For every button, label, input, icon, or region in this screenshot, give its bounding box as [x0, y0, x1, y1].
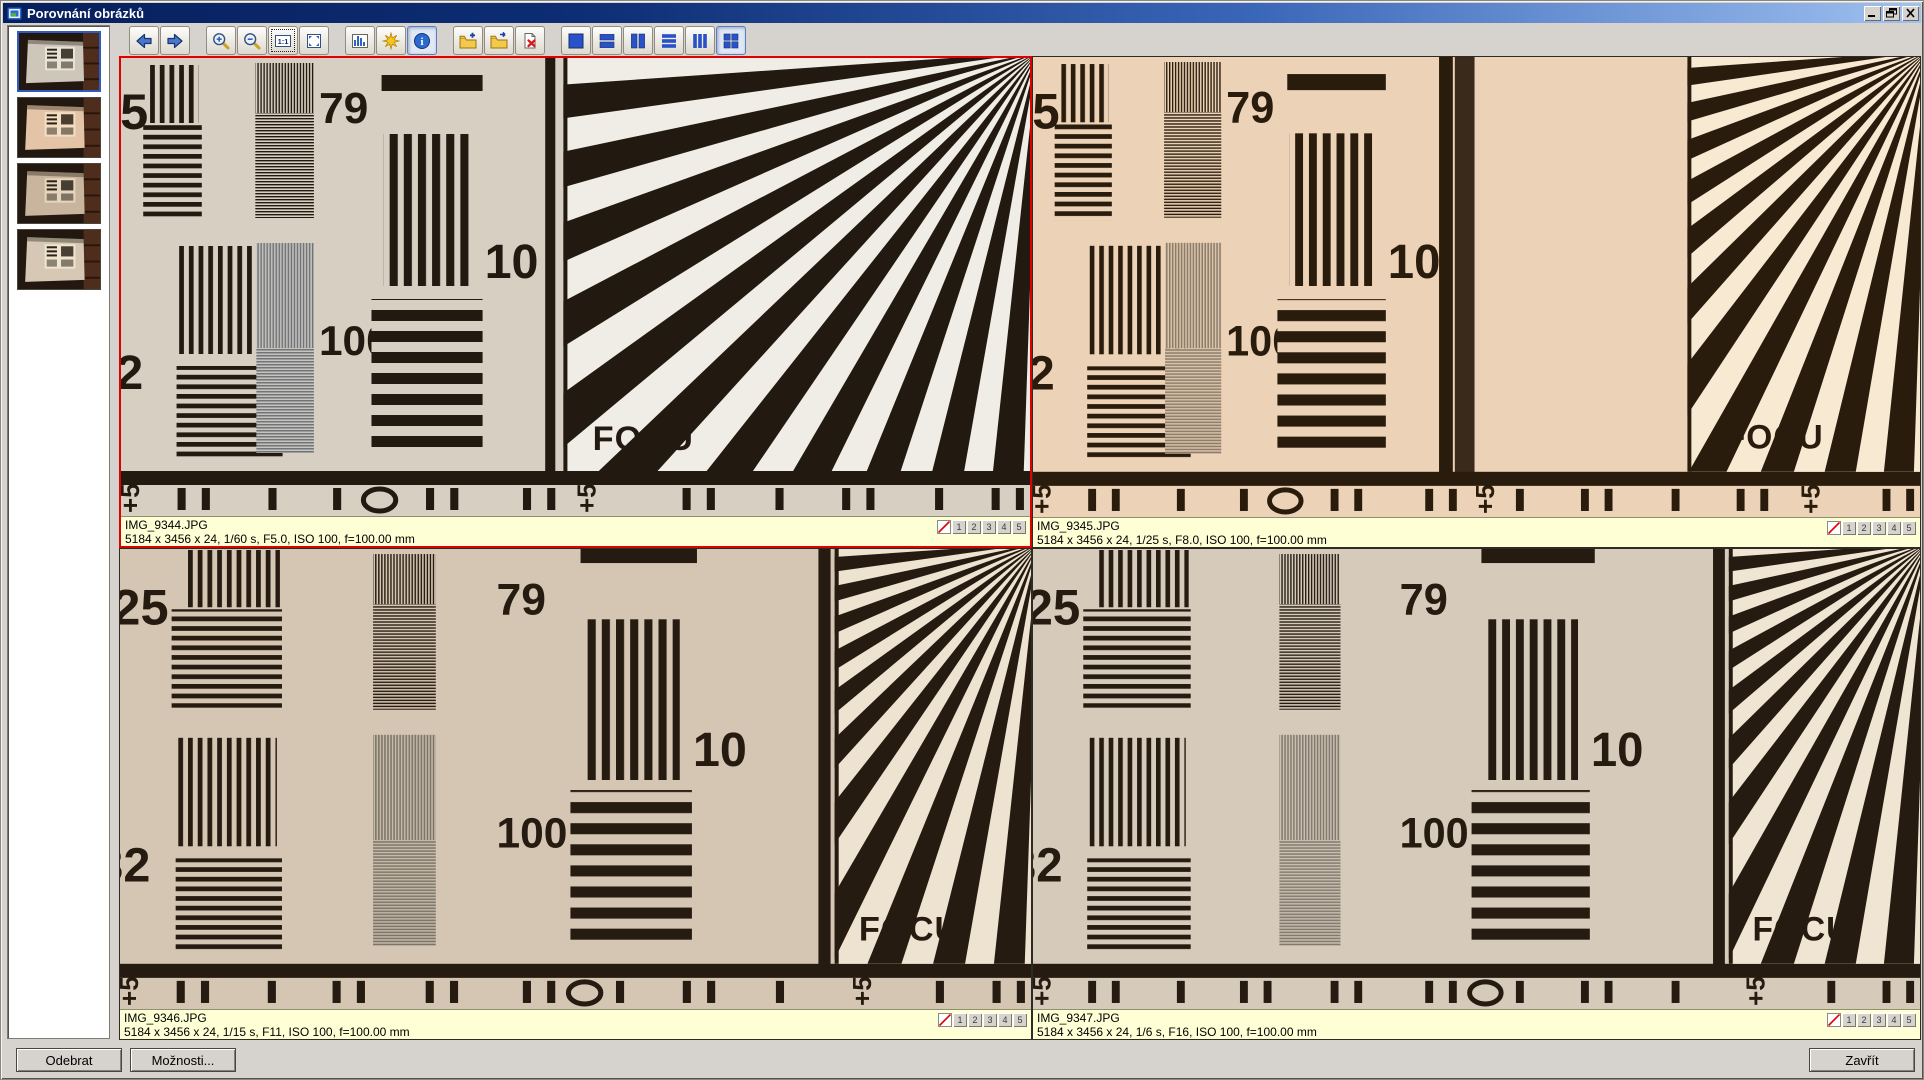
- svg-text:FOCU: FOCU: [593, 420, 694, 458]
- no-page-button[interactable]: [938, 1013, 952, 1027]
- layout-three-rows-icon: [659, 31, 679, 51]
- test-chart-image: 527910010FOCU+5+5: [121, 58, 1030, 516]
- svg-text:+5: +5: [1033, 484, 1057, 514]
- svg-text:FOCU: FOCU: [1752, 910, 1851, 948]
- remove-image-icon: [520, 31, 540, 51]
- svg-text:10: 10: [1388, 236, 1441, 289]
- svg-text:FOCU: FOCU: [859, 911, 961, 949]
- actual-size-icon: 1:1: [273, 31, 293, 51]
- layout-single-icon: [566, 31, 586, 51]
- thumbnail-image: [18, 164, 100, 223]
- page-buttons: 12345: [1827, 1011, 1916, 1027]
- forward-icon: [165, 31, 185, 51]
- image-view[interactable]: 25327910010FOCU+5+5: [1033, 549, 1920, 1009]
- svg-text:25: 25: [1033, 579, 1080, 636]
- no-page-button[interactable]: [1827, 521, 1841, 535]
- svg-text:32: 32: [1033, 839, 1063, 892]
- close-dialog-button[interactable]: Zavřít: [1809, 1048, 1915, 1072]
- effects-icon: [381, 31, 401, 51]
- add-image-icon: [458, 31, 478, 51]
- compare-grid: 527910010FOCU+5+5 IMG_9344.JPG 5184 x 34…: [119, 56, 1921, 1040]
- image-filename: IMG_9345.JPG: [1037, 519, 1327, 533]
- histogram-button[interactable]: [345, 26, 375, 55]
- restore-button[interactable]: [1883, 6, 1900, 21]
- image-details: 5184 x 3456 x 24, 1/6 s, F16, ISO 100, f…: [1037, 1025, 1317, 1039]
- image-filename: IMG_9347.JPG: [1037, 1011, 1317, 1025]
- back-icon: [134, 31, 154, 51]
- toolbar: 1:1i: [117, 24, 1921, 57]
- compare-pane-3[interactable]: 25327910010FOCU+5+5 IMG_9346.JPG 5184 x …: [119, 548, 1032, 1040]
- page-button-4[interactable]: 4: [1887, 1013, 1901, 1027]
- page-button-1[interactable]: 1: [1842, 1013, 1856, 1027]
- compare-pane-4[interactable]: 25327910010FOCU+5+5 IMG_9347.JPG 5184 x …: [1032, 548, 1921, 1040]
- image-info-text: IMG_9347.JPG 5184 x 3456 x 24, 1/6 s, F1…: [1037, 1011, 1317, 1039]
- page-button-5[interactable]: 5: [1012, 520, 1026, 534]
- minimize-button[interactable]: [1864, 6, 1881, 21]
- svg-text:+5: +5: [1033, 976, 1057, 1006]
- svg-text:5: 5: [1033, 83, 1060, 140]
- layout-two-columns-button[interactable]: [623, 26, 653, 55]
- image-view[interactable]: 527910010FOCU+5+5: [121, 58, 1030, 516]
- page-button-3[interactable]: 3: [982, 520, 996, 534]
- page-button-1[interactable]: 1: [953, 1013, 967, 1027]
- restore-icon: [1886, 8, 1897, 18]
- svg-text:10: 10: [485, 235, 539, 289]
- page-button-1[interactable]: 1: [952, 520, 966, 534]
- svg-text:10: 10: [1591, 724, 1644, 777]
- layout-grid-icon: [721, 31, 741, 51]
- no-page-button[interactable]: [1827, 1013, 1841, 1027]
- layout-two-rows-icon: [597, 31, 617, 51]
- svg-text:10: 10: [693, 723, 747, 777]
- actual-size-button[interactable]: 1:1: [268, 26, 298, 55]
- fit-to-window-icon: [304, 31, 324, 51]
- svg-text:2: 2: [121, 346, 143, 400]
- image-filename: IMG_9344.JPG: [125, 518, 415, 532]
- close-button[interactable]: [1902, 6, 1919, 21]
- svg-text:25: 25: [120, 579, 169, 636]
- page-button-5[interactable]: 5: [1013, 1013, 1027, 1027]
- page-button-2[interactable]: 2: [1857, 1013, 1871, 1027]
- test-chart-image: 527910010FOCU+5+5+5: [1033, 57, 1920, 517]
- window-titlebar[interactable]: Porovnání obrázků: [3, 3, 1921, 23]
- slash-icon: [1827, 1013, 1841, 1027]
- image-info-text: IMG_9345.JPG 5184 x 3456 x 24, 1/25 s, F…: [1037, 519, 1327, 547]
- back-button[interactable]: [129, 26, 159, 55]
- image-details: 5184 x 3456 x 24, 1/60 s, F5.0, ISO 100,…: [125, 532, 415, 546]
- svg-text:5: 5: [121, 84, 148, 140]
- page-button-3[interactable]: 3: [1872, 521, 1886, 535]
- fit-to-window-button[interactable]: [299, 26, 329, 55]
- image-info-bar: IMG_9347.JPG 5184 x 3456 x 24, 1/6 s, F1…: [1033, 1009, 1920, 1039]
- layout-two-columns-icon: [628, 31, 648, 51]
- footer-bar: Odebrat Možnosti... Zavřít: [3, 1040, 1921, 1077]
- page-buttons: 12345: [938, 1011, 1027, 1027]
- page-button-2[interactable]: 2: [967, 520, 981, 534]
- page-buttons: 12345: [1827, 519, 1916, 535]
- thumbnail-2[interactable]: [17, 97, 101, 158]
- svg-text:79: 79: [497, 575, 547, 624]
- svg-text:FOCU: FOCU: [1725, 418, 1824, 456]
- slash-icon: [1827, 521, 1841, 535]
- thumbnail-image: [18, 98, 100, 157]
- svg-text:+5: +5: [847, 976, 877, 1006]
- image-details: 5184 x 3456 x 24, 1/25 s, F8.0, ISO 100,…: [1037, 533, 1327, 547]
- svg-text:2: 2: [1033, 347, 1055, 400]
- forward-button[interactable]: [160, 26, 190, 55]
- thumbnail-1[interactable]: [17, 31, 101, 92]
- layout-grid-button[interactable]: [716, 26, 746, 55]
- test-chart-image: 25327910010FOCU+5+5: [120, 549, 1031, 1009]
- image-details: 5184 x 3456 x 24, 1/15 s, F11, ISO 100, …: [124, 1025, 410, 1039]
- remove-button[interactable]: Odebrat: [16, 1048, 122, 1072]
- zoom-out-icon: [242, 31, 262, 51]
- svg-text:79: 79: [1226, 83, 1274, 132]
- minimize-icon: [1867, 8, 1878, 18]
- image-view[interactable]: 527910010FOCU+5+5+5: [1033, 57, 1920, 517]
- layout-three-columns-button[interactable]: [685, 26, 715, 55]
- no-page-button[interactable]: [937, 520, 951, 534]
- page-button-4[interactable]: 4: [997, 520, 1011, 534]
- replace-image-icon: [489, 31, 509, 51]
- svg-text:i: i: [420, 36, 423, 48]
- page-button-5[interactable]: 5: [1902, 1013, 1916, 1027]
- thumbnail-4[interactable]: [17, 229, 101, 290]
- image-info-text: IMG_9346.JPG 5184 x 3456 x 24, 1/15 s, F…: [124, 1011, 410, 1039]
- close-icon: [1905, 8, 1916, 18]
- layout-three-rows-button[interactable]: [654, 26, 684, 55]
- remove-image-button[interactable]: [515, 26, 545, 55]
- svg-text:+5: +5: [1472, 484, 1500, 514]
- add-image-button[interactable]: [453, 26, 483, 55]
- slash-icon: [938, 1013, 952, 1027]
- image-view[interactable]: 25327910010FOCU+5+5: [120, 549, 1031, 1009]
- slash-icon: [937, 520, 951, 534]
- image-info-bar: IMG_9345.JPG 5184 x 3456 x 24, 1/25 s, F…: [1033, 517, 1920, 547]
- page-button-3[interactable]: 3: [983, 1013, 997, 1027]
- svg-text:+5: +5: [120, 976, 144, 1006]
- histogram-icon: [350, 31, 370, 51]
- image-info-bar: IMG_9346.JPG 5184 x 3456 x 24, 1/15 s, F…: [120, 1009, 1031, 1039]
- image-info-text: IMG_9344.JPG 5184 x 3456 x 24, 1/60 s, F…: [125, 518, 415, 546]
- svg-text:79: 79: [1400, 575, 1448, 624]
- image-info-bar: IMG_9344.JPG 5184 x 3456 x 24, 1/60 s, F…: [121, 516, 1030, 546]
- page-button-4[interactable]: 4: [1887, 521, 1901, 535]
- layout-two-rows-button[interactable]: [592, 26, 622, 55]
- info-button[interactable]: i: [407, 26, 437, 55]
- page-button-3[interactable]: 3: [1872, 1013, 1886, 1027]
- effects-button[interactable]: [376, 26, 406, 55]
- zoom-in-icon: [211, 31, 231, 51]
- svg-text:100: 100: [1400, 809, 1469, 856]
- test-chart-image: 25327910010FOCU+5+5: [1033, 549, 1920, 1009]
- svg-text:+5: +5: [1798, 484, 1826, 514]
- page-button-2[interactable]: 2: [1857, 521, 1871, 535]
- thumbnail-3[interactable]: [17, 163, 101, 224]
- window-title: Porovnání obrázků: [27, 6, 144, 21]
- layout-single-button[interactable]: [561, 26, 591, 55]
- svg-text:32: 32: [120, 839, 150, 893]
- page-button-2[interactable]: 2: [968, 1013, 982, 1027]
- svg-text:+5: +5: [572, 483, 602, 513]
- thumbnail-image: [18, 230, 100, 289]
- options-button[interactable]: Možnosti...: [130, 1048, 236, 1072]
- page-button-5[interactable]: 5: [1902, 521, 1916, 535]
- image-filename: IMG_9346.JPG: [124, 1011, 410, 1025]
- page-buttons: 12345: [937, 518, 1026, 534]
- layout-three-columns-icon: [690, 31, 710, 51]
- svg-text:79: 79: [319, 84, 368, 133]
- svg-text:+5: +5: [121, 483, 145, 513]
- thumbnail-image: [19, 33, 99, 90]
- info-icon: i: [412, 31, 432, 51]
- window-controls: [1864, 6, 1921, 21]
- page-button-1[interactable]: 1: [1842, 521, 1856, 535]
- zoom-out-button[interactable]: [237, 26, 267, 55]
- compare-pane-2[interactable]: 527910010FOCU+5+5+5 IMG_9345.JPG 5184 x …: [1032, 56, 1921, 548]
- replace-image-button[interactable]: [484, 26, 514, 55]
- svg-text:100: 100: [497, 809, 568, 856]
- compare-pane-1[interactable]: 527910010FOCU+5+5 IMG_9344.JPG 5184 x 34…: [119, 56, 1032, 548]
- svg-text:+5: +5: [1742, 976, 1770, 1006]
- page-button-4[interactable]: 4: [998, 1013, 1012, 1027]
- thumbnail-list: [7, 25, 110, 1039]
- zoom-in-button[interactable]: [206, 26, 236, 55]
- app-icon: [7, 6, 22, 21]
- comparison-window: Porovnání obrázků 1:1i 527910010FOCU+5+5…: [0, 0, 1924, 1080]
- svg-text:1:1: 1:1: [278, 36, 289, 45]
